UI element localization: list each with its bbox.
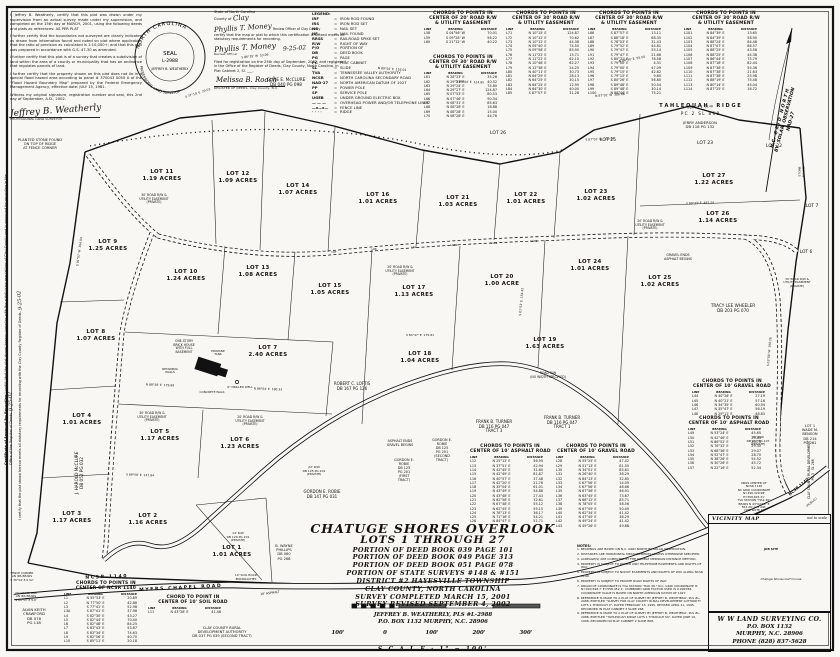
lot-label-lot-10: LOT 10 1.24 ACRES: [166, 269, 205, 283]
road-rw-no-width: ROAD R/W (NO WIDTH SPECIFIED): [530, 372, 566, 379]
chords-table-30ft-rw-2: CHORDS TO POINTS IN CENTER OF 30' ROAD R…: [506, 12, 586, 96]
vicinity-note: not to scale: [807, 516, 827, 522]
review-date: 9-25-02: [283, 45, 307, 54]
bearing-10: N 86°04' E 180.33: [254, 388, 283, 393]
road-myers-chapel: M Y E R S C H A P E L R O A D: [139, 584, 221, 594]
vicinity-golf-course: Chatuge Shores Golf Course: [756, 577, 806, 581]
lot-label-lot-25: LOT 25 1.02 ACRES: [640, 275, 679, 289]
tahlequah-pc-sl: P C 2 S L 8 6 8: [681, 112, 719, 117]
table-row: L11N 43°28' E41.48: [148, 610, 238, 614]
firm-city: MURPHY, N.C. 28906: [709, 631, 830, 638]
lot-label-lot-24: LOT 24 1.01 ACRES: [570, 259, 609, 273]
asphalt-18: 18' ASPHALT: [260, 591, 280, 597]
list-item: 7. ORIGIN OF COORDINATE IS TVA STATION "…: [577, 585, 705, 596]
vicinity-map: VICINITY MAP not to scale JOB SITE Chatu…: [708, 514, 831, 612]
lot-label-lot-12: LOT 12 1.09 ACRES: [218, 171, 257, 185]
retaining-walls: RETAINING WALLS: [162, 368, 178, 375]
line-tag-l97: L97: [331, 251, 336, 254]
list-item: I further certify that the boundaries no…: [10, 34, 142, 52]
owner-robert-loftis: ROBERT C. LOFTIS DB 167 PG 126: [334, 382, 370, 391]
owner-frank-turner-tract1: FRANK B. TURNER DB 116 PG 047 TRACT 1: [544, 416, 580, 430]
adjacent-lot-23: LOT 23: [697, 141, 713, 146]
lot-label-lot-13: LOT 13 1.08 ACRES: [238, 265, 277, 279]
lot-label-lot-9: LOT 9 1.25 ACRES: [88, 239, 127, 253]
table-row: L57N 22°16' E52.34: [688, 466, 770, 470]
bearing-9: N 88°38' E 179.89: [146, 384, 175, 389]
drilled-well: 6" DRILLED WELL: [227, 386, 252, 389]
easement-20-s: 20' ROAD R/W & UTILITY EASEMENT (PRIVATE…: [235, 416, 264, 427]
bearing-16: S 03°08' W 198.26: [767, 337, 773, 366]
propane-tank: PROPANE TANK: [211, 350, 225, 357]
list-item: 3. ACREAGE(S) ARE COMPUTED BY THE DOUBLE…: [577, 558, 705, 562]
firm-name: W W LAND SURVEYING CO.: [709, 616, 830, 624]
table-title: CHORDS TO POINTS IN CENTER OF 30' ROAD R…: [684, 12, 768, 27]
owner-frank-turner-tract3: FRANK B. TURNER DB 116 PG 047 TRACT 3: [476, 420, 512, 434]
chords-table-gravel-road: CHORDS TO POINTS IN CENTER OF 10' GRAVEL…: [556, 445, 636, 528]
firm-phone: PHONE (828) 837-5628: [709, 639, 830, 646]
bearing-8: S 89°33' E 487.24: [686, 202, 714, 207]
adjacent-lot-7: LOT 7: [806, 204, 819, 209]
table-title: CHORD TO POINT IN CENTER OF 10' SOIL ROA…: [148, 596, 238, 606]
table-row: L43N 49°26' E49.88: [556, 524, 636, 528]
county-label: County of: [214, 17, 231, 21]
table-row: L100N 88°06' E75.21: [588, 91, 670, 95]
line-tag-l101: L101: [491, 242, 498, 245]
white-oak-note: 20' WHITE OAK AN IRS BEARS S 84°53' E 5.…: [15, 592, 37, 602]
surveyor-address: P.O. BOX 1132 MURPHY, N.C. 28906: [302, 619, 564, 626]
gravel-ends: GRAVEL ENDS ASPHALT BEGINS: [664, 254, 692, 262]
strip2-body: I certify that the plat shown hereon mee…: [18, 311, 22, 520]
table-title: CHORDS TO POINTS IN CENTER OF 10' ASPHAL…: [688, 417, 770, 427]
surveyor-name: JEFFREY B. WEATHERLY, PLS #L-2988: [302, 612, 564, 619]
table-title: CHORDS TO POINTS IN CENTER OF 10' ASPHAL…: [470, 445, 550, 455]
fence-corner-note: FENCE CORNER AN IRS BEARS S 36°54' E 0.5…: [10, 572, 33, 582]
lot-label-lot-17: LOT 17 1.13 ACRES: [394, 285, 433, 299]
lot-label-lot-8: LOT 8 1.07 ACRES: [76, 329, 115, 343]
notes-block: NOTES: 1. BEARINGS ARE BASED ON N.C. GRI…: [577, 544, 705, 625]
survey-plat-sheet: NORTH CAROLINA PROFESSIONAL LAND SURVEYO…: [0, 0, 840, 657]
list-item: SURVEY REVISED SEPTEMBER 4, 2002: [302, 601, 564, 609]
stone-found: STONE FOUND: [798, 166, 805, 177]
title-block: CHATUGE SHORES OVERLOOK LOTS 1 THROUGH 2…: [302, 522, 564, 653]
review-officer-signature: Phyllis T. Money: [214, 41, 276, 55]
lot-label-lot-11: LOT 11 1.19 ACRES: [142, 169, 181, 183]
legend-rows: IRF=IRON ROD FOUNDIRS=IRON ROD SETNS=NAI…: [312, 17, 430, 115]
vicinity-title: VICINITY MAP: [712, 516, 760, 522]
line-tag-l102: L102: [531, 240, 538, 243]
list-item: I, Jeffrey B. Weatherly, certify that th…: [10, 13, 142, 31]
scale-text: S C A L E : 1" = 100': [333, 646, 533, 653]
lot-label-lot-21: LOT 21 1.03 ACRES: [438, 195, 477, 209]
rw-22: 22' R/W DB 125 PG 201 (PRIVATE): [303, 466, 326, 477]
table-title: CHORDS TO POINTS IN CENTER OF 10' GRAVEL…: [692, 380, 772, 390]
bearing-11: S 89°58' E 147.84: [126, 474, 154, 479]
easement-30-e: 30' ROAD R/W & UTILITY EASEMENT (PRIVATE…: [783, 278, 810, 288]
table-row: L10S 85°11' E20.18: [64, 639, 148, 643]
lot-label-lot-23: LOT 23 1.02 ACRES: [576, 189, 615, 203]
easement-30-nw: 30' ROAD R/W & UTILITY EASEMENT (PRIVATE…: [139, 194, 168, 205]
rw-14: 14' R/W DB 129 PG 201 (PRIVATE): [227, 532, 250, 543]
owner-jerry-anderson: JERRY ANDERSON DB 118 PG 132: [683, 121, 717, 130]
bearing-15: S 01°53' E 154.42: [519, 288, 525, 316]
line-tag-l99: L99: [411, 246, 416, 249]
lot-label-lot-3: LOT 3 1.17 ACRES: [52, 511, 91, 525]
vicinity-job-site: JOB SITE: [764, 547, 778, 551]
easement-20-east: 20' ROAD R/W & UTILITY EASEMENT (PRIVATE…: [635, 220, 664, 231]
strip1-date: 9-25-02: [8, 391, 16, 411]
lot-label-lot-14: LOT 14 1.07 ACRES: [278, 183, 317, 197]
scale-labels: 100' 0 100' 200' 300': [333, 630, 533, 637]
owner-wade-benson: LOT 1 WADE M. BENSON DB 214 PG 261: [802, 424, 818, 445]
recording-approval-strip: Certificate of Approval for Recording I …: [4, 165, 15, 465]
table-title: CHORDS TO POINTS IN CENTER OF 30' ROAD R…: [588, 12, 670, 27]
ccrd-right-edge: CLAY COUNTY RURAL DEVELOPMENT PC 3 SL 26…: [808, 440, 816, 499]
house-note: ONE-STORY BRICK HOUSE WITH FULL BASEMENT: [173, 340, 194, 355]
adjacent-lot-26: LOT 26: [490, 131, 506, 136]
list-item: 9. REFERENCE IS MADE TO A PLAT OF SURVEY…: [577, 612, 705, 623]
list-item: Witness my original signature, registrat…: [10, 93, 142, 102]
lot-label-lot-2: LOT 2 1.16 ACRES: [128, 513, 167, 527]
nc-grid-north: N.C. G R I D N O R T H BY SOLAR OBSERVAT…: [770, 86, 803, 154]
list-item: I further certify that the property show…: [10, 72, 142, 90]
easement-20-mid: 20' ROAD R/W & UTILITY EASEMENT (PRIVATE…: [385, 266, 414, 277]
notes-list: 1. BEARINGS ARE BASED ON N.C. GRID NORTH…: [577, 548, 705, 623]
lot-label-lot-26: LOT 26 1.14 ACRES: [698, 211, 737, 225]
owner-tracy-wheeler: TRACY LEE WHEELER DB 203 PG 070: [711, 304, 755, 314]
line-tag-l98: L98: [371, 248, 376, 251]
lot-label-lot-16: LOT 16 1.01 ACRES: [358, 192, 397, 206]
table-title: CHORDS TO POINTS IN CENTER OF 30' ROAD R…: [424, 56, 502, 71]
chords-table-ncsr-1140: CHORDS TO POINTS IN CENTER OF NCSR 1140L…: [64, 582, 148, 644]
owner-j-harold-mcclure: J. HAROLD McCLURE DB 052 PG 032: [75, 452, 85, 495]
bearing-13: S 84°47' E 175.81: [406, 334, 434, 338]
table-title: CHORDS TO POINTS IN CENTER OF 30' ROAD R…: [506, 12, 586, 27]
concrete-walk: CONCRETE WALK: [199, 391, 224, 394]
table-title: CHORDS TO POINTS IN CENTER OF 20' ROAD R…: [424, 12, 502, 27]
table-title: CHORDS TO POINTS IN CENTER OF NCSR 1140: [64, 582, 148, 592]
lot-label-lot-19: LOT 19 1.63 ACRES: [525, 337, 564, 351]
strip2-date: 9-25-02: [16, 291, 24, 311]
line-tag-l100: L100: [451, 244, 458, 247]
owner-gordon-robie-first: GORDON E. ROBIE DB 125 PG 201 (FIRST TRA…: [394, 458, 414, 482]
lot-label-lot-5: LOT 5 1.17 ACRES: [140, 429, 179, 443]
surveyor-certification: I, Jeffrey B. Weatherly, certify that th…: [10, 13, 142, 122]
lot-label-lot-1: LOT 1 1.01 ACRES: [212, 545, 251, 559]
asphalt-ends: ASPHALT ENDS GRAVEL BEGINS: [387, 440, 413, 448]
county-value: Clay: [232, 14, 248, 24]
firm-block: W W LAND SURVEYING CO. P.O. BOX 1132 MUR…: [708, 612, 831, 652]
lot-label-lot-6: LOT 6 1.23 ACRES: [220, 437, 259, 451]
lot-label-lot-20: LOT 20 1.00 ACRE: [485, 274, 520, 288]
planted-stone-note: PLANTED STONE FOUND ON TOP OF RIDGE AT F…: [18, 138, 62, 151]
list-item: 8. REFERENCE IS MADE TO A PLAT OF SURVEY…: [577, 597, 705, 612]
lot-label-lot-22: LOT 22 1.01 ACRES: [506, 192, 545, 206]
owner-b-wayne-phillips: B. WAYNE PHILLIPS DB 060 PG 268: [275, 544, 292, 561]
nrss-coordinate-note: NRSS CENTER OF NCSR 1140 NC GRID COORDIN…: [738, 482, 771, 513]
table-row: L114N 87°25' E16.72: [684, 87, 768, 91]
chords-table-30ft-rw-1: CHORDS TO POINTS IN CENTER OF 30' ROAD R…: [424, 56, 502, 118]
statutory-strip: I certify that the plat shown hereon mee…: [17, 160, 23, 520]
chords-table-asphalt-road: CHORDS TO POINTS IN CENTER OF 10' ASPHAL…: [470, 445, 550, 524]
table-title: CHORDS TO POINTS IN CENTER OF 10' GRAVEL…: [556, 445, 636, 455]
chords-table-asphalt-road-2: CHORDS TO POINTS IN CENTER OF 10' ASPHAL…: [688, 417, 770, 470]
list-item: 6. PROPERTY IS SUBJECT TO PRIVATE ROAD R…: [577, 580, 705, 584]
plat-subtitle: LOTS 1 THROUGH 27: [302, 535, 564, 547]
chord-table-soil-road: CHORD TO POINT IN CENTER OF 10' SOIL ROA…: [148, 596, 238, 615]
easement-30-sw: 30' ROAD R/W & UTILITY EASEMENT (PRIVATE…: [137, 412, 166, 423]
list-item: 5. PROPERTY IS SUBJECT TO NCDOT EASEMENT…: [577, 571, 705, 578]
chords-table-gravel-road-2: CHORDS TO POINTS IN CENTER OF 10' GRAVEL…: [692, 380, 772, 416]
legend: LEGEND: IRF=IRON ROD FOUNDIRS=IRON ROD S…: [312, 12, 430, 115]
owner-gordon-robie-147: GORDON E. ROBIE DB 147 PG 031: [304, 490, 341, 499]
plat-references: PORTION OF DEED BOOK 039 PAGE 101PORTION…: [302, 547, 564, 610]
bearing-14: S 77°14' E 20.03: [185, 88, 211, 99]
list-item: 4. PROPERTY IS SUBJECT TO POWER AND TELE…: [577, 563, 705, 570]
legend-item: · · · ·=RIDGE: [312, 110, 430, 115]
table-row: L85S 87°57' E31.28: [506, 91, 586, 95]
lot-label-lot-7: LOT 7 2.40 ACRES: [248, 345, 287, 359]
table-row: L60S 21°12' W40.22: [424, 40, 502, 44]
soil-road-encroaches: 10' SOIL ROAD ENCROACHES: [235, 574, 257, 581]
owner-gordon-robie-second: GORDON E. ROBIE DB 125 PG 201 (SECOND TR…: [432, 438, 452, 462]
lot-label-lot-18: LOT 18 1.04 ACRES: [400, 351, 439, 365]
lot-label-lot-15: LOT 15 1.05 ACRES: [310, 283, 349, 297]
adjacent-lot-6: LOT 6: [800, 250, 813, 255]
owner-alvin-crawford: ALVIN KEITH CRAWFORD DB 078 PG 118: [22, 608, 45, 626]
chords-table-30ft-rw-3: CHORDS TO POINTS IN CENTER OF 30' ROAD R…: [588, 12, 670, 96]
ccrd-bottom: CLAY COUNTY RURAL DEVELOPMENT AUTHORITY …: [192, 626, 251, 639]
bearing-12: S 01°07' W 304.04: [76, 237, 84, 266]
list-item: I further certify that this plat is of a…: [10, 55, 142, 69]
table-row: L70N 08°28' E44.76: [424, 114, 502, 118]
firm-po-box: P.O. BOX 1132: [709, 624, 830, 631]
chords-table-20ft-rw: CHORDS TO POINTS IN CENTER OF 20' ROAD R…: [424, 12, 502, 44]
lot-label-lot-4: LOT 4 1.01 ACRES: [62, 413, 101, 427]
lot-label-lot-27: LOT 27 1.22 ACRES: [694, 173, 733, 187]
chords-table-30ft-rw-4: CHORDS TO POINTS IN CENTER OF 30' ROAD R…: [684, 12, 768, 91]
certification-paragraphs: I, Jeffrey B. Weatherly, certify that th…: [10, 13, 142, 102]
